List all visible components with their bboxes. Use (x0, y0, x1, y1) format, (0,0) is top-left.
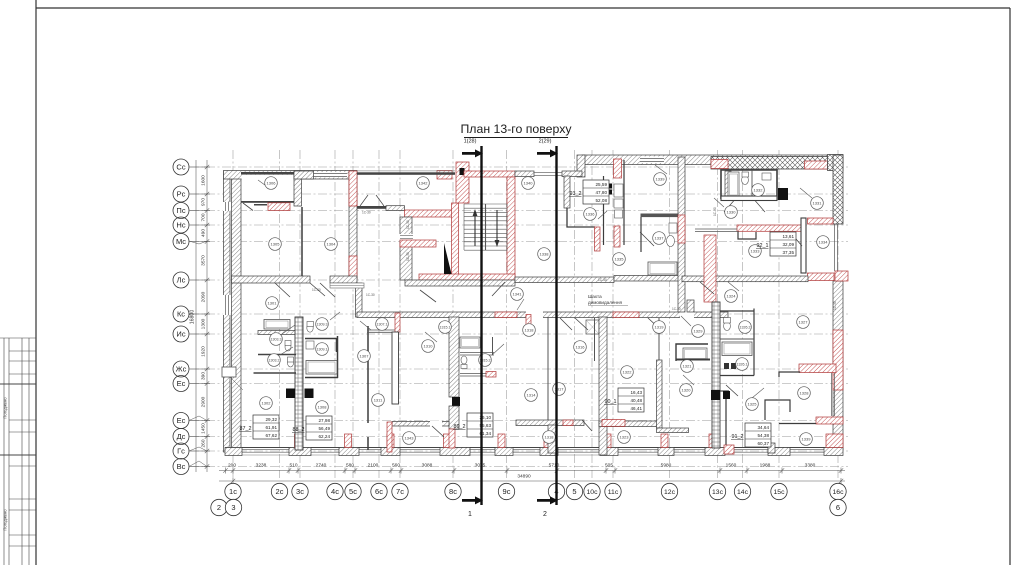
svg-text:1335: 1335 (615, 256, 625, 261)
svg-text:60,37: 60,37 (758, 441, 770, 446)
svg-text:5710: 5710 (549, 463, 560, 469)
svg-text:34890: 34890 (517, 474, 531, 480)
svg-text:2100: 2100 (368, 463, 379, 469)
svg-text:6: 6 (836, 503, 840, 512)
svg-text:Рс: Рс (177, 189, 186, 198)
svg-text:1(28): 1(28) (464, 139, 477, 145)
svg-text:32,09: 32,09 (783, 242, 795, 247)
svg-text:1329: 1329 (694, 328, 704, 333)
svg-text:88_2: 88_2 (293, 427, 305, 433)
svg-text:1332: 1332 (754, 187, 764, 192)
svg-text:1341: 1341 (513, 291, 523, 296)
svg-text:1328: 1328 (800, 390, 810, 395)
svg-text:2с: 2с (276, 487, 284, 496)
svg-text:2: 2 (217, 503, 221, 512)
svg-text:Пс: Пс (176, 206, 185, 215)
svg-text:13,61: 13,61 (783, 234, 795, 239)
svg-text:87_2: 87_2 (240, 426, 252, 432)
svg-text:62,24: 62,24 (319, 434, 331, 439)
svg-text:1325: 1325 (748, 401, 758, 406)
svg-text:1323: 1323 (620, 434, 630, 439)
svg-text:1310: 1310 (424, 343, 434, 348)
svg-text:1302: 1302 (262, 400, 272, 405)
svg-text:10с: 10с (587, 489, 599, 496)
svg-text:1338: 1338 (540, 251, 550, 256)
svg-text:Ис: Ис (176, 329, 185, 338)
svg-text:1309.3: 1309.3 (317, 322, 328, 326)
svg-text:40,48: 40,48 (631, 398, 643, 403)
svg-text:1318: 1318 (525, 327, 535, 332)
svg-text:1334: 1334 (819, 239, 829, 244)
svg-text:2(29): 2(29) (539, 139, 552, 145)
svg-text:5с: 5с (349, 487, 357, 496)
svg-text:16800: 16800 (190, 310, 196, 325)
svg-text:1560: 1560 (726, 463, 737, 469)
svg-text:1300: 1300 (201, 318, 207, 329)
svg-text:46,41: 46,41 (631, 406, 643, 411)
svg-text:1С-30: 1С-30 (406, 252, 410, 261)
svg-text:1С-30: 1С-30 (406, 220, 410, 229)
svg-text:6с: 6с (375, 487, 383, 496)
svg-text:1324: 1324 (727, 293, 737, 298)
svg-text:1336: 1336 (586, 211, 596, 216)
svg-text:1306: 1306 (267, 180, 277, 185)
svg-text:1340: 1340 (524, 180, 534, 185)
svg-text:1316: 1316 (576, 344, 586, 349)
svg-text:Погоджено: Погоджено (3, 509, 8, 531)
svg-text:9с: 9с (503, 487, 511, 496)
svg-text:15с: 15с (774, 489, 786, 496)
svg-text:1С-30: 1С-30 (362, 211, 371, 215)
svg-text:61,91: 61,91 (266, 425, 278, 430)
svg-text:1301: 1301 (268, 300, 278, 305)
svg-text:1920: 1920 (201, 346, 207, 357)
svg-text:505: 505 (605, 463, 613, 469)
svg-text:700: 700 (201, 213, 207, 221)
svg-text:8с: 8с (449, 487, 457, 496)
svg-text:1321: 1321 (683, 363, 693, 368)
svg-text:29,32: 29,32 (266, 417, 278, 422)
svg-text:3238: 3238 (256, 463, 267, 469)
svg-text:3570: 3570 (201, 255, 207, 266)
svg-text:92_1: 92_1 (757, 243, 769, 249)
svg-text:2: 2 (543, 511, 547, 518)
svg-text:Дс: Дс (177, 432, 186, 441)
svg-text:1327: 1327 (799, 319, 809, 324)
svg-text:Кс: Кс (177, 309, 185, 318)
svg-text:1337: 1337 (655, 235, 665, 240)
svg-text:3с: 3с (296, 487, 304, 496)
svg-text:91_2: 91_2 (732, 434, 744, 440)
svg-text:1988: 1988 (760, 463, 771, 469)
svg-text:Лс: Лс (177, 275, 186, 284)
svg-text:260: 260 (201, 439, 207, 447)
svg-text:1331: 1331 (813, 200, 823, 205)
svg-text:16с: 16с (833, 489, 845, 496)
svg-text:54,38: 54,38 (758, 433, 770, 438)
svg-text:1319: 1319 (655, 324, 665, 329)
svg-text:580: 580 (346, 463, 354, 469)
svg-text:27,98: 27,98 (319, 418, 331, 423)
svg-text:Мс: Мс (176, 237, 186, 246)
svg-text:1305: 1305 (271, 241, 281, 246)
svg-text:16,43: 16,43 (631, 390, 643, 395)
svg-text:1600: 1600 (201, 175, 207, 186)
svg-text:1342: 1342 (419, 180, 429, 185)
svg-text:1318: 1318 (545, 434, 555, 439)
svg-text:План 13-го поверху: План 13-го поверху (460, 122, 572, 136)
svg-text:Шахта: Шахта (588, 294, 602, 299)
svg-text:67,62: 67,62 (266, 433, 278, 438)
svg-text:1339: 1339 (656, 176, 666, 181)
svg-text:1450: 1450 (201, 423, 207, 434)
svg-text:560: 560 (392, 463, 400, 469)
svg-text:3380: 3380 (805, 463, 816, 469)
svg-text:90_1: 90_1 (605, 399, 617, 405)
svg-text:2090: 2090 (201, 291, 207, 302)
svg-text:5: 5 (572, 487, 576, 496)
svg-text:1343: 1343 (405, 435, 415, 440)
svg-text:1С-30: 1С-30 (833, 301, 837, 310)
svg-text:Гс: Гс (177, 446, 185, 455)
svg-text:12с: 12с (664, 489, 676, 496)
svg-text:93_2: 93_2 (570, 191, 582, 197)
svg-text:1326.1: 1326.1 (737, 362, 748, 366)
svg-text:14с: 14с (737, 489, 749, 496)
svg-text:1308: 1308 (318, 404, 328, 409)
svg-text:1304: 1304 (327, 241, 337, 246)
svg-text:1315.1: 1315.1 (440, 325, 451, 329)
svg-text:1309.1: 1309.1 (317, 347, 328, 351)
svg-text:1311: 1311 (374, 397, 383, 402)
svg-text:1326.2: 1326.2 (740, 325, 751, 329)
svg-text:1303.3: 1303.3 (271, 337, 282, 341)
svg-text:34,64: 34,64 (758, 425, 770, 430)
svg-text:1333: 1333 (751, 248, 761, 253)
svg-text:3: 3 (231, 503, 235, 512)
svg-text:1307: 1307 (360, 353, 370, 358)
svg-text:89_2: 89_2 (454, 424, 466, 430)
svg-text:Погоджено: Погоджено (3, 397, 8, 419)
svg-text:2900: 2900 (201, 396, 207, 407)
svg-text:Жс: Жс (176, 364, 187, 373)
svg-text:Ес: Ес (177, 379, 186, 388)
svg-text:970: 970 (201, 198, 207, 206)
svg-text:1: 1 (468, 511, 472, 518)
svg-text:Ес: Ес (177, 416, 186, 425)
svg-text:Нс: Нс (176, 220, 185, 229)
svg-text:11с: 11с (608, 489, 619, 496)
svg-text:13с: 13с (712, 489, 724, 496)
svg-text:1с: 1с (229, 487, 237, 496)
svg-text:390: 390 (201, 372, 207, 380)
svg-text:52,08: 52,08 (596, 198, 608, 203)
svg-text:3075: 3075 (475, 463, 486, 469)
svg-text:1303.2: 1303.2 (269, 358, 280, 362)
svg-text:2740: 2740 (316, 463, 327, 469)
svg-text:Сс: Сс (176, 162, 185, 171)
svg-text:1314: 1314 (527, 392, 537, 397)
svg-text:димовидалення: димовидалення (588, 300, 623, 305)
svg-text:1С-30: 1С-30 (598, 278, 607, 282)
svg-text:3088: 3088 (422, 463, 433, 469)
svg-text:Вс: Вс (177, 462, 186, 471)
svg-text:7с: 7с (396, 487, 404, 496)
svg-text:200: 200 (228, 463, 236, 469)
svg-text:5980: 5980 (661, 463, 672, 469)
svg-text:1330: 1330 (727, 209, 737, 214)
svg-text:47,80: 47,80 (596, 190, 608, 195)
svg-text:1С-30: 1С-30 (366, 293, 375, 297)
svg-text:4с: 4с (331, 487, 339, 496)
svg-text:1307.1: 1307.1 (377, 322, 388, 326)
svg-text:56,49: 56,49 (319, 426, 331, 431)
svg-text:25,59: 25,59 (596, 182, 608, 187)
svg-text:1320: 1320 (682, 387, 692, 392)
svg-text:1С-30: 1С-30 (672, 307, 681, 311)
svg-text:1322: 1322 (623, 369, 633, 374)
svg-text:510: 510 (289, 463, 297, 469)
svg-text:37,35: 37,35 (783, 250, 795, 255)
svg-text:1339: 1339 (802, 436, 812, 441)
svg-text:490: 490 (201, 229, 207, 237)
svg-text:1С-30: 1С-30 (713, 207, 717, 216)
